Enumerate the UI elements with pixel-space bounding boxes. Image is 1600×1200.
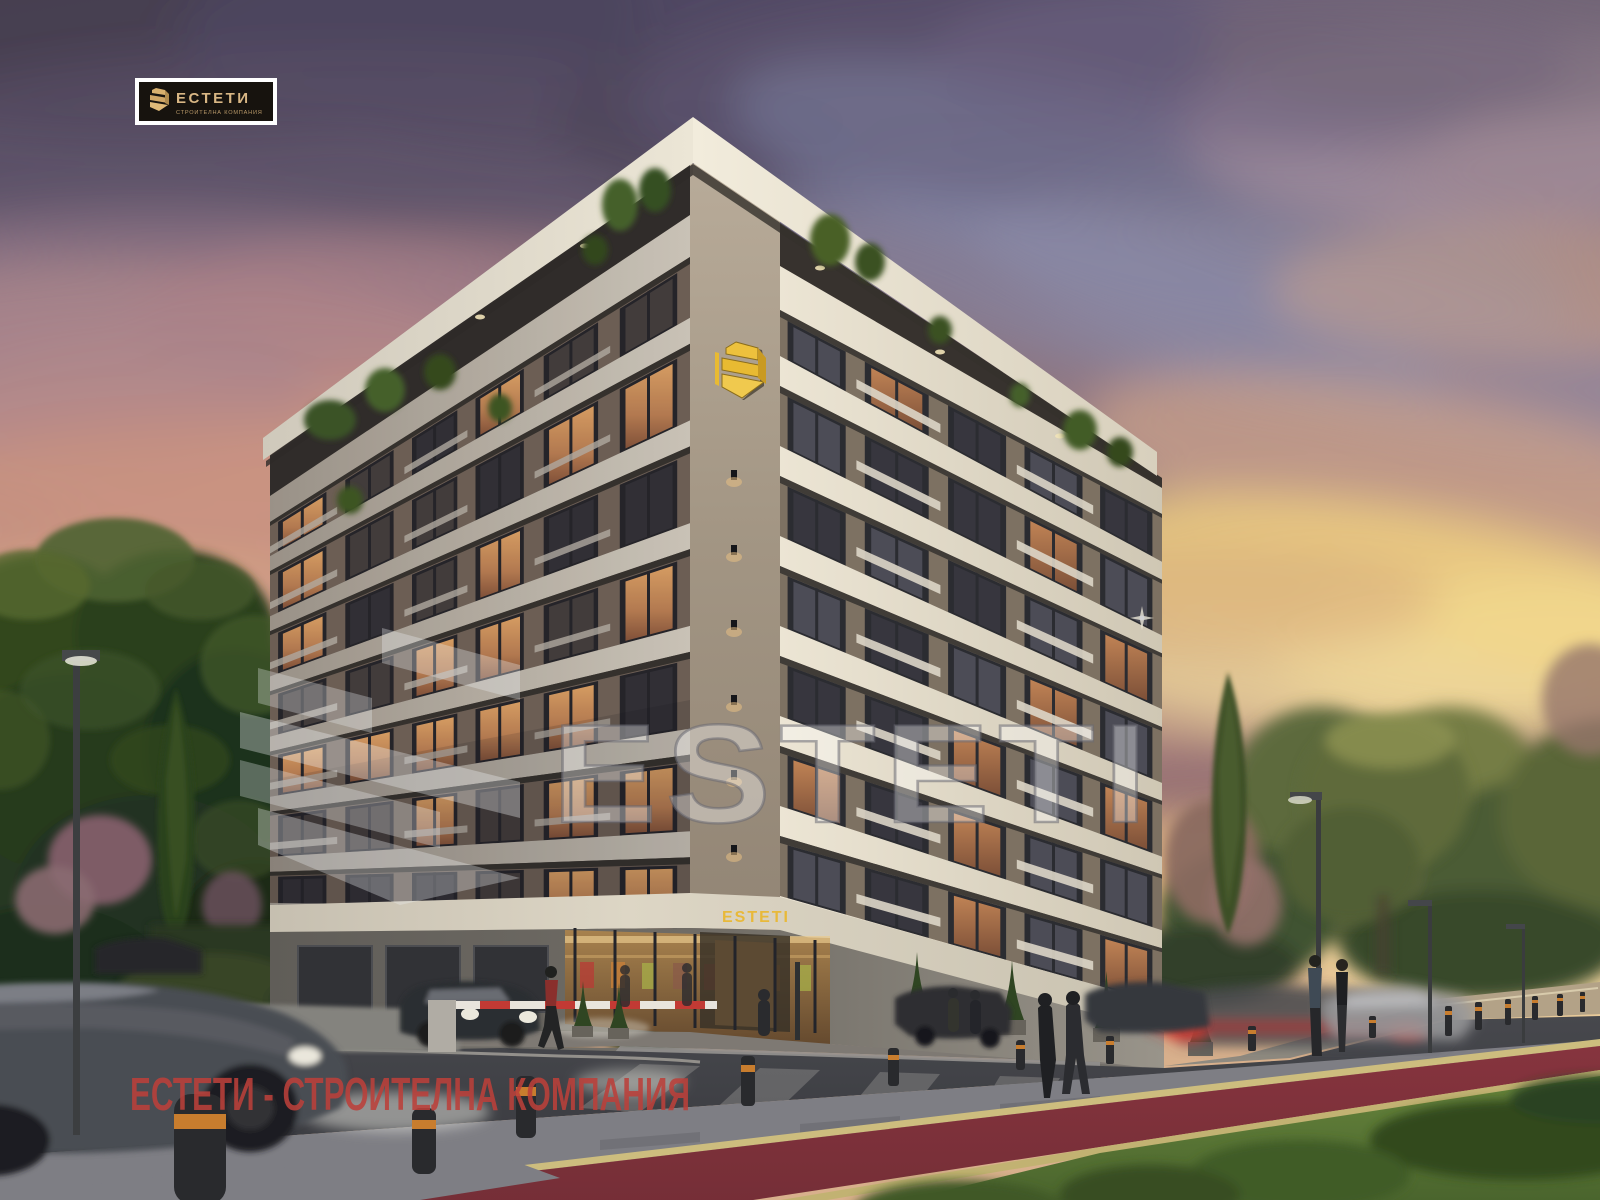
svg-text:ESTETI: ESTETI xyxy=(722,909,790,926)
svg-text:ЕСТЕТИ: ЕСТЕТИ xyxy=(176,90,251,107)
svg-text:ESTETI: ESTETI xyxy=(552,695,1156,852)
svg-text:СТРОИТЕЛНА КОМПАНИЯ: СТРОИТЕЛНА КОМПАНИЯ xyxy=(176,110,263,116)
svg-text:ЕСТЕТИ - СТРОИТЕЛНА КОМПАНИЯ: ЕСТЕТИ - СТРОИТЕЛНА КОМПАНИЯ xyxy=(130,1068,690,1120)
